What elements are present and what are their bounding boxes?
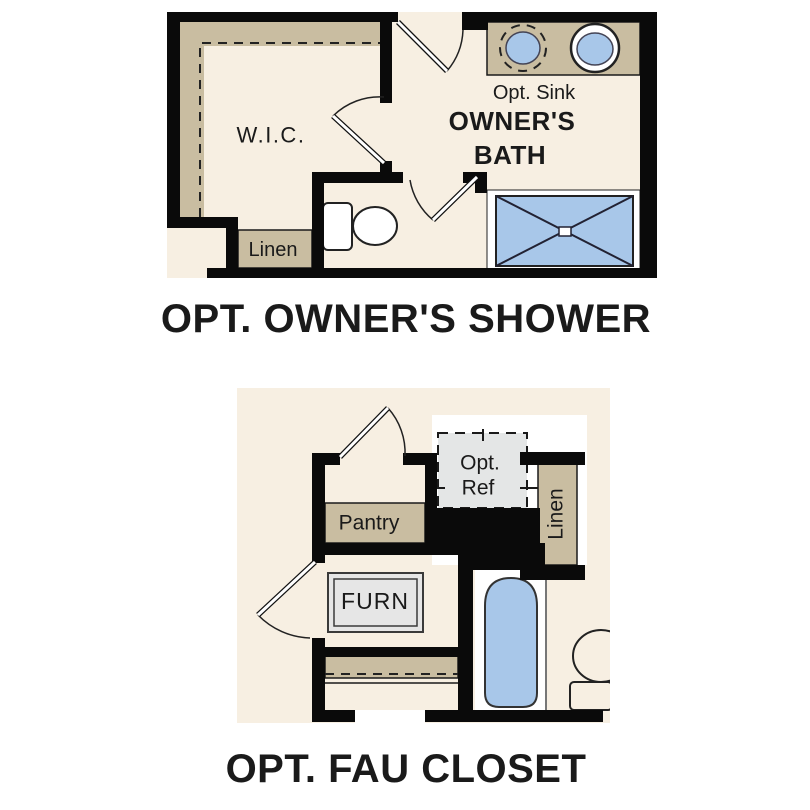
furnace-label: FURN [341,588,409,614]
toilet-bowl-bottom-plan [573,630,629,682]
existing-sink [571,24,619,72]
wall-segment [380,12,392,103]
wall-segment [312,453,340,465]
bathtub [485,578,537,707]
toilet-tank-bottom-plan [570,682,612,710]
wall-segment [458,570,473,712]
owners-bath-label-line2: BATH [474,140,546,170]
floor-plan-figure: W.I.C. Linen Opt. Sink OWNER'S BATH OPT.… [0,0,810,810]
wall-segment [167,12,180,228]
wall-segment [462,12,488,30]
wall-segment [520,565,585,580]
wall-segment [640,12,657,278]
sink-basin [577,33,613,65]
wall-segment [425,710,603,722]
toilet-bowl [353,207,397,245]
wall-segment [312,172,403,183]
optional-sink-basin [506,32,540,64]
owners-shower-title: OPT. OWNER'S SHOWER [161,297,651,341]
bottom-wall-opening [355,710,425,723]
wall-segment [312,647,470,657]
plan-fau-closet: Pantry Opt. Ref FURN Linen OPT. FAU CLOS… [226,388,629,791]
owners-bath-label-line1: OWNER'S [449,106,576,136]
shower [487,190,640,270]
opt-ref-label-line2: Ref [462,477,495,500]
wall-segment [312,710,355,722]
wall-segment [475,172,487,193]
wall-segment [312,540,325,563]
wall-segment [312,172,324,278]
fau-closet-title: OPT. FAU CLOSET [226,747,587,791]
opt-sink-label: Opt. Sink [493,82,576,104]
wall-segment [167,12,398,22]
wall-segment [403,453,427,465]
wall-segment [462,12,657,22]
linen-label-top-plan: Linen [249,239,298,261]
wall-segment [312,453,325,555]
pantry-label: Pantry [339,512,400,535]
toilet-tank [323,203,352,250]
shower-drain [559,227,571,236]
linen-label-bottom-plan: Linen [545,488,568,539]
plan-owners-shower: W.I.C. Linen Opt. Sink OWNER'S BATH OPT.… [161,12,657,341]
wall-segment [207,268,657,278]
opt-ref-label-line1: Opt. [460,452,500,475]
wall-segment [520,452,585,465]
wic-label: W.I.C. [237,123,306,148]
